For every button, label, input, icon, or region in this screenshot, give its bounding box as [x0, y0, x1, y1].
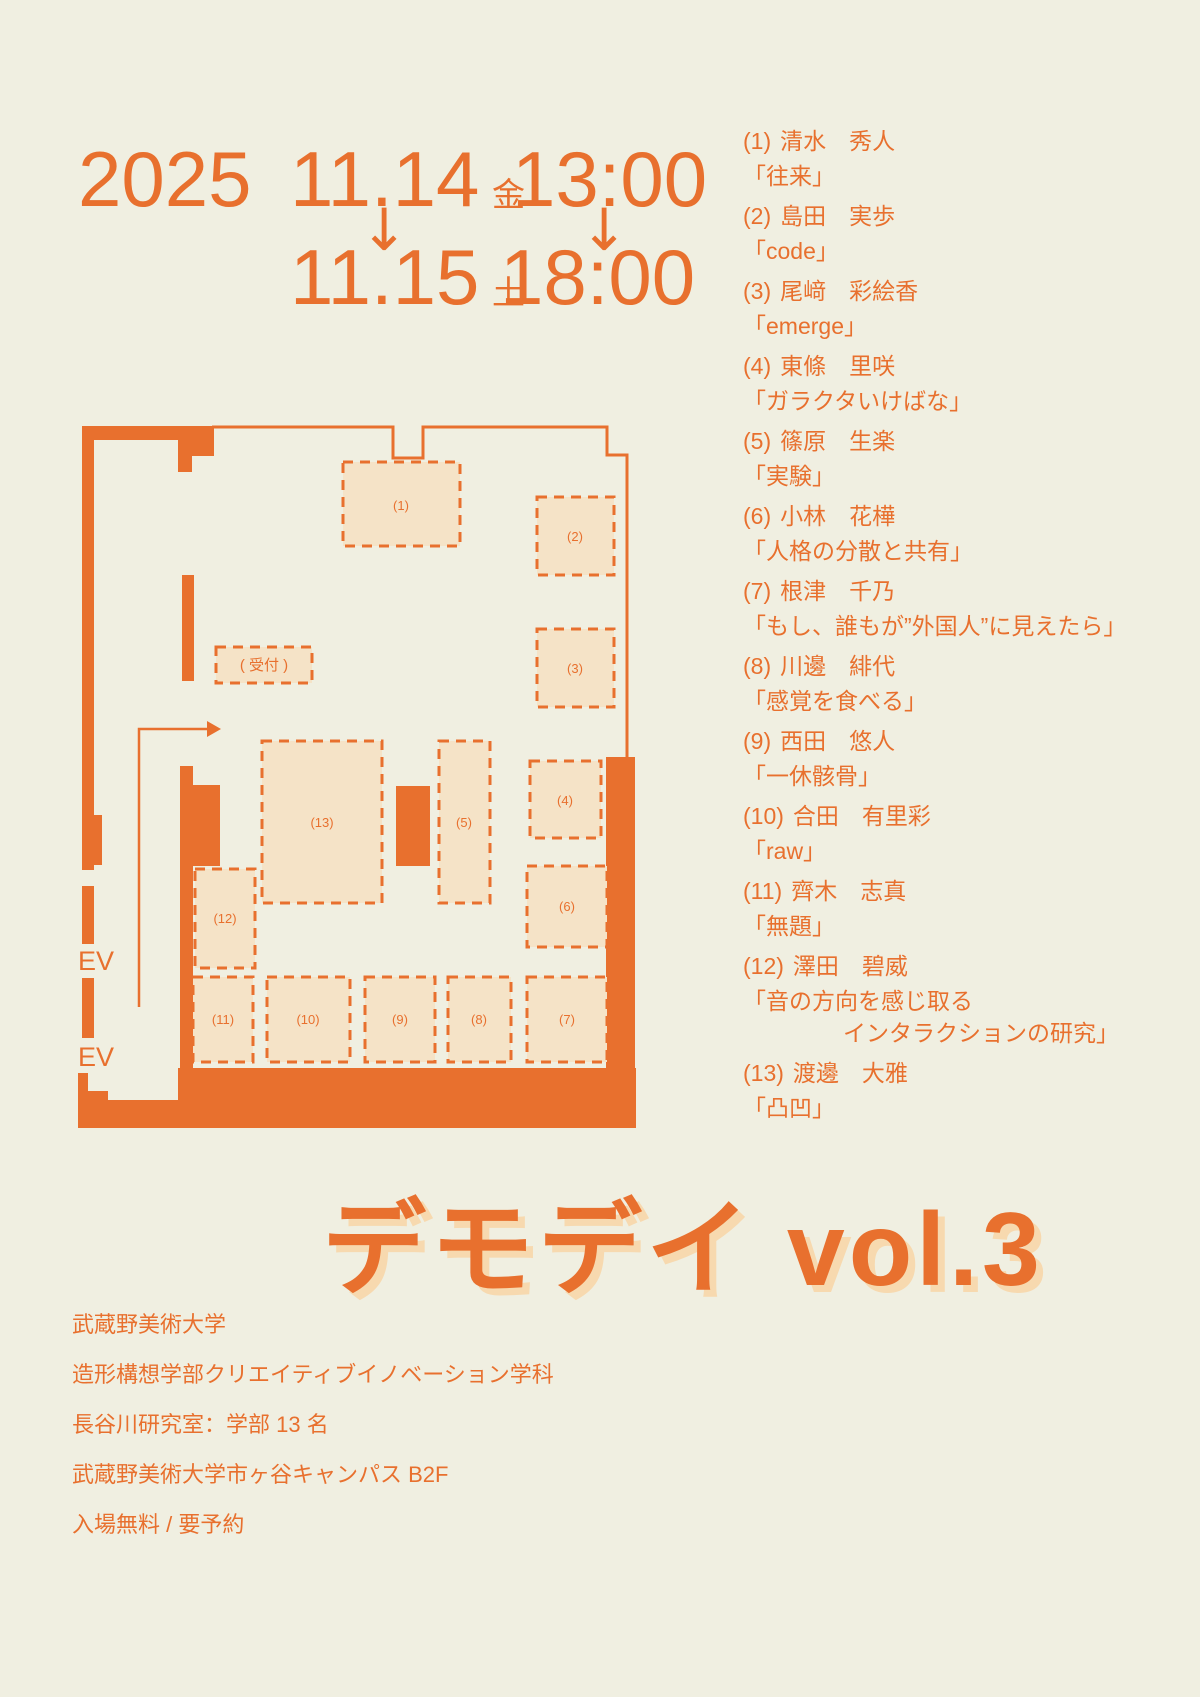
exhibitor-name: (5)篠原 生楽	[743, 428, 1123, 454]
booth-label-2: (2)	[567, 529, 583, 544]
wall-left-bar	[82, 426, 94, 870]
wall-left-bump	[94, 815, 102, 865]
work-title: 「往来」	[743, 163, 1123, 189]
exhibitor-name: (9)西田 悠人	[743, 728, 1123, 754]
work-title: 「無題」	[743, 913, 1123, 939]
wall-segment-mid	[182, 575, 194, 681]
elevator-shaft	[82, 978, 94, 1038]
work-title: 「もし、誰もが”外国人”に見えたら」	[743, 613, 1123, 639]
exhibitor-entry-10: (10)合田 有里彩 「raw」	[743, 803, 1123, 864]
exhibitor-entry-3: (3)尾﨑 彩絵香 「emerge」	[743, 278, 1123, 339]
center-pillar	[396, 786, 430, 866]
work-title: 「凸凹」	[743, 1095, 1123, 1121]
lab-info: 長谷川研究室：学部 13 名	[72, 1412, 554, 1438]
exhibitor-entry-9: (9)西田 悠人 「一休骸骨」	[743, 728, 1123, 789]
exhibitor-number: (8)	[743, 653, 771, 679]
work-title: 「code」	[743, 238, 1123, 264]
exhibitor-entry-13: (13)渡邊 大雅 「凸凹」	[743, 1060, 1123, 1121]
elevator-label: EV	[78, 946, 114, 976]
work-title-line2: インタラクションの研究」	[743, 1020, 1123, 1046]
wall-bottom-left-step2	[88, 1091, 108, 1128]
exhibitor-entry-12: (12)澤田 碧威 「音の方向を感じ取る インタラクションの研究」	[743, 953, 1123, 1046]
booth-label-3: (3)	[567, 661, 583, 676]
exhibitor-name: (13)渡邊 大雅	[743, 1060, 1123, 1086]
work-title: 「ガラクタいけばな」	[743, 388, 1123, 414]
end-date: 11.15	[290, 232, 479, 323]
wall-bottom-left-step1	[78, 1073, 88, 1128]
booth-label-4: (4)	[557, 793, 573, 808]
exhibitor-number: (11)	[743, 878, 782, 904]
floor-plan: (1) (2) (3) (4) (5) (6) (7) (8) (9) (10)…	[60, 380, 700, 1140]
exhibitor-name: (7)根津 千乃	[743, 578, 1123, 604]
booth-label-6: (6)	[559, 899, 575, 914]
event-title: デモデイ vol.3	[322, 1164, 1044, 1315]
work-title: 「emerge」	[743, 313, 1123, 339]
exhibitor-number: (2)	[743, 203, 771, 229]
work-title: 「人格の分散と共有」	[743, 538, 1123, 564]
poster-page: 2025 11.14 金 13:00 ↓ ↓ 11.15 土 18:00	[0, 0, 1200, 1697]
elevator-shaft	[82, 886, 94, 944]
wall-lower-block	[180, 785, 220, 866]
work-title: 「感覚を食べる」	[743, 688, 1123, 714]
work-title: 「一休骸骨」	[743, 763, 1123, 789]
admission-info: 入場無料 / 要予約	[72, 1512, 554, 1538]
booth-label-10: (10)	[296, 1012, 319, 1027]
exhibitor-name: (4)東條 里咲	[743, 353, 1123, 379]
exhibitor-entry-4: (4)東條 里咲 「ガラクタいけばな」	[743, 353, 1123, 414]
exhibitor-entry-6: (6)小林 花樺 「人格の分散と共有」	[743, 503, 1123, 564]
booth-label-13: (13)	[310, 815, 333, 830]
booth-label-5: (5)	[456, 815, 472, 830]
wall-bottom-band	[178, 1068, 636, 1128]
venue-info: 武蔵野美術大学市ヶ谷キャンパス B2F	[72, 1462, 554, 1488]
exhibitor-name: (3)尾﨑 彩絵香	[743, 278, 1123, 304]
wall-top-bar	[82, 426, 214, 440]
booth-label-8: (8)	[471, 1012, 487, 1027]
work-title: 「実験」	[743, 463, 1123, 489]
booths	[193, 462, 614, 1062]
exhibitor-number: (6)	[743, 503, 771, 529]
exhibitor-name: (6)小林 花樺	[743, 503, 1123, 529]
elevator-label: EV	[78, 1042, 114, 1072]
exhibitor-number: (4)	[743, 353, 771, 379]
exhibitor-number: (9)	[743, 728, 771, 754]
booth-label-9: (9)	[392, 1012, 408, 1027]
booth-label-1: (1)	[393, 498, 409, 513]
university-name: 武蔵野美術大学	[72, 1312, 554, 1338]
work-title: 「音の方向を感じ取る	[743, 988, 1123, 1014]
exhibitor-number: (7)	[743, 578, 771, 604]
exhibitor-entry-2: (2)島田 実歩 「code」	[743, 203, 1123, 264]
wall-bottom-left-step3	[108, 1100, 178, 1128]
exhibitor-entry-7: (7)根津 千乃 「もし、誰もが”外国人”に見えたら」	[743, 578, 1123, 639]
work-title: 「raw」	[743, 838, 1123, 864]
wall-step-block	[178, 440, 214, 456]
footer-info: 武蔵野美術大学 造形構想学部クリエイティブイノベーション学科 長谷川研究室：学部…	[72, 1312, 554, 1562]
exhibitor-number: (10)	[743, 803, 784, 829]
reception-label: ( 受付 )	[240, 657, 288, 674]
booth-label-7: (7)	[559, 1012, 575, 1027]
exhibitor-number: (5)	[743, 428, 771, 454]
exhibitor-entry-5: (5)篠原 生楽 「実験」	[743, 428, 1123, 489]
year-label: 2025	[78, 134, 252, 225]
exhibitor-entry-11: (11)齊木 志真 「無題」	[743, 878, 1123, 939]
exhibitor-name: (2)島田 実歩	[743, 203, 1123, 229]
exhibitor-entry-8: (8)川邊 緋代 「感覚を食べる」	[743, 653, 1123, 714]
exhibitor-number: (1)	[743, 128, 771, 154]
booth-label-12: (12)	[213, 911, 236, 926]
department-name: 造形構想学部クリエイティブイノベーション学科	[72, 1362, 554, 1388]
exhibitor-name: (1)清水 秀人	[743, 128, 1123, 154]
exhibitor-name: (10)合田 有里彩	[743, 803, 1123, 829]
booth-label-11: (11)	[212, 1012, 234, 1027]
exhibitor-number: (12)	[743, 953, 784, 979]
exhibitor-name: (12)澤田 碧威	[743, 953, 1123, 979]
exhibitor-name: (8)川邊 緋代	[743, 653, 1123, 679]
wall-step-tail	[178, 456, 192, 472]
exhibitor-name: (11)齊木 志真	[743, 878, 1123, 904]
end-time: 18:00	[500, 232, 695, 323]
exhibitor-number: (3)	[743, 278, 771, 304]
exhibitor-entry-1: (1)清水 秀人 「往来」	[743, 128, 1123, 189]
exhibitor-list: (1)清水 秀人 「往来」 (2)島田 実歩 「code」 (3)尾﨑 彩絵香 …	[743, 128, 1123, 1135]
exhibitor-number: (13)	[743, 1060, 784, 1086]
